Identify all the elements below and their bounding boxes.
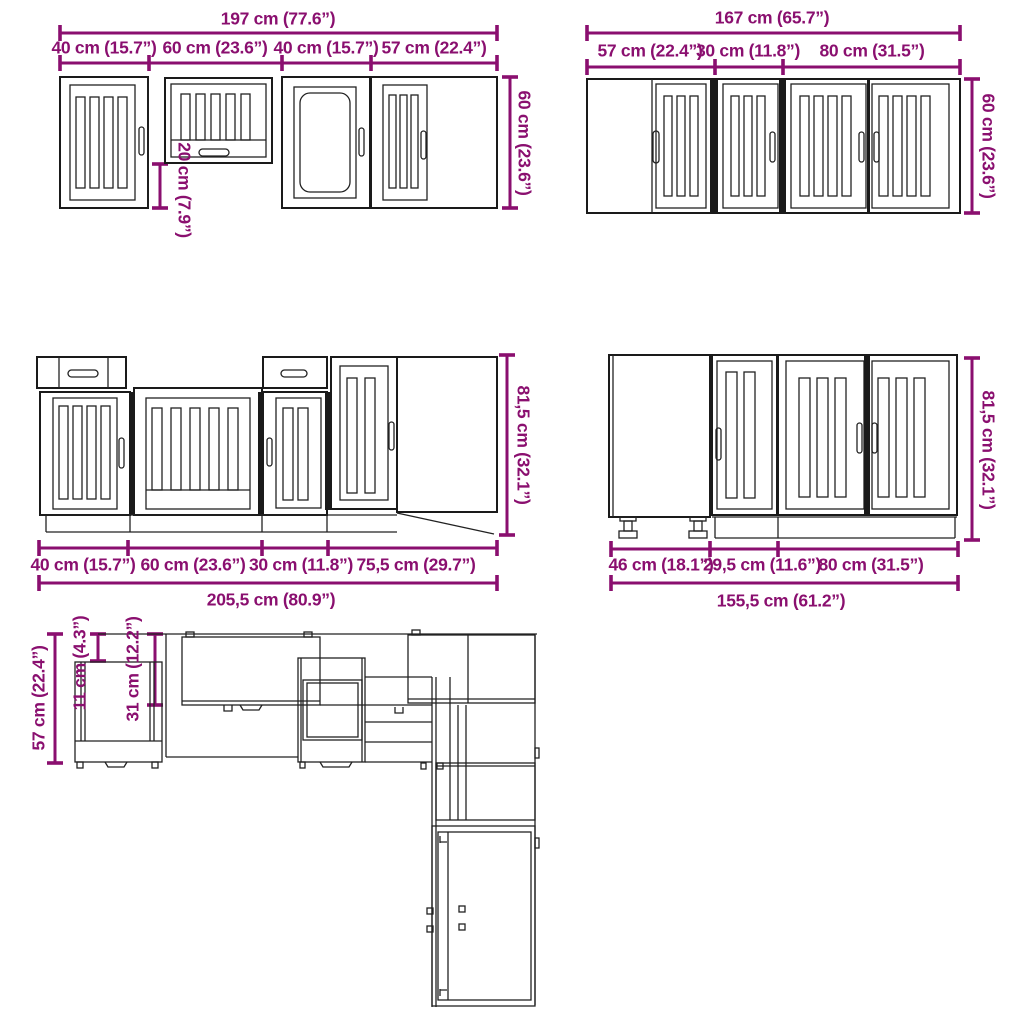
base-right-unit-2	[712, 355, 777, 515]
base-left-unit-3	[263, 357, 330, 515]
wall-left-cabinet-3-glass	[282, 77, 370, 208]
base-right-unit-3-double	[778, 355, 957, 515]
base-right-section-2-label: 29,5 cm (11.6”)	[703, 555, 821, 576]
wall-right-section-3-label: 80 cm (31.5”)	[819, 41, 924, 62]
wall-right-section-2-label: 30 cm (11.8”)	[696, 41, 800, 62]
wall-left-drop-height-label: 20 cm (7.9”)	[174, 142, 195, 238]
wall-left-section-1-label: 40 cm (15.7”)	[51, 38, 156, 59]
wall-right-section-1-label: 57 cm (22.4”)	[597, 41, 702, 62]
base-left-unit-1	[37, 357, 133, 515]
wall-right-cabinets	[587, 79, 960, 213]
plan-dimension-lines	[47, 634, 163, 763]
plan-right-arm	[408, 630, 539, 1007]
wall-left-section-2-label: 60 cm (23.6”)	[162, 38, 267, 59]
base-left-section-4-label: 75,5 cm (29.7”)	[356, 555, 475, 576]
wall-left-cabinet-4	[371, 77, 497, 208]
wall-left-total-width-label: 197 cm (77.6”)	[221, 9, 335, 30]
plan-wall-cabinet-depth-label: 31 cm (12.2”)	[123, 616, 144, 721]
wall-right-total-width-label: 167 cm (65.7”)	[715, 8, 829, 29]
base-right-plinth	[712, 517, 957, 538]
base-left-unit-4-corner	[331, 357, 497, 534]
base-left-section-1-label: 40 cm (15.7”)	[30, 555, 135, 576]
base-left-plinth	[40, 515, 397, 532]
wall-left-cabinet-1	[60, 77, 148, 208]
wall-left-section-3-label: 40 cm (15.7”)	[273, 38, 378, 59]
wall-left-cabinet-2	[148, 77, 272, 208]
base-left-unit-2	[134, 388, 263, 515]
base-left-section-3-label: 30 cm (11.8”)	[249, 555, 353, 576]
wall-left-section-4-label: 57 cm (22.4”)	[381, 38, 486, 59]
base-left-height-label: 81,5 cm (32.1”)	[513, 385, 534, 504]
plan-middle-block	[298, 658, 426, 769]
wall-right-height-label: 60 cm (23.6”)	[978, 93, 999, 198]
base-left-section-2-label: 60 cm (23.6”)	[140, 555, 245, 576]
base-right-total-width-label: 155,5 cm (61.2”)	[717, 591, 845, 612]
kitchen-cabinet-line-art	[0, 0, 1024, 1024]
base-right-section-1-label: 46 cm (18.1”)	[608, 555, 713, 576]
plan-view-drawing	[47, 630, 539, 1007]
base-right-height-label: 81,5 cm (32.1”)	[978, 390, 999, 509]
wall-left-height-label: 60 cm (23.6”)	[514, 90, 535, 195]
plan-upper-gap-depth-label: 11 cm (4.3”)	[70, 616, 91, 711]
base-right-section-3-label: 80 cm (31.5”)	[818, 555, 923, 576]
base-right-unit-1-panel	[609, 355, 710, 538]
plan-corner-zone	[320, 677, 432, 762]
plan-counter-depth-label: 57 cm (22.4”)	[29, 645, 50, 750]
product-dimension-diagram: 197 cm (77.6”) 40 cm (15.7”) 60 cm (23.6…	[0, 0, 1024, 1024]
base-left-total-width-label: 205,5 cm (80.9”)	[207, 590, 335, 611]
